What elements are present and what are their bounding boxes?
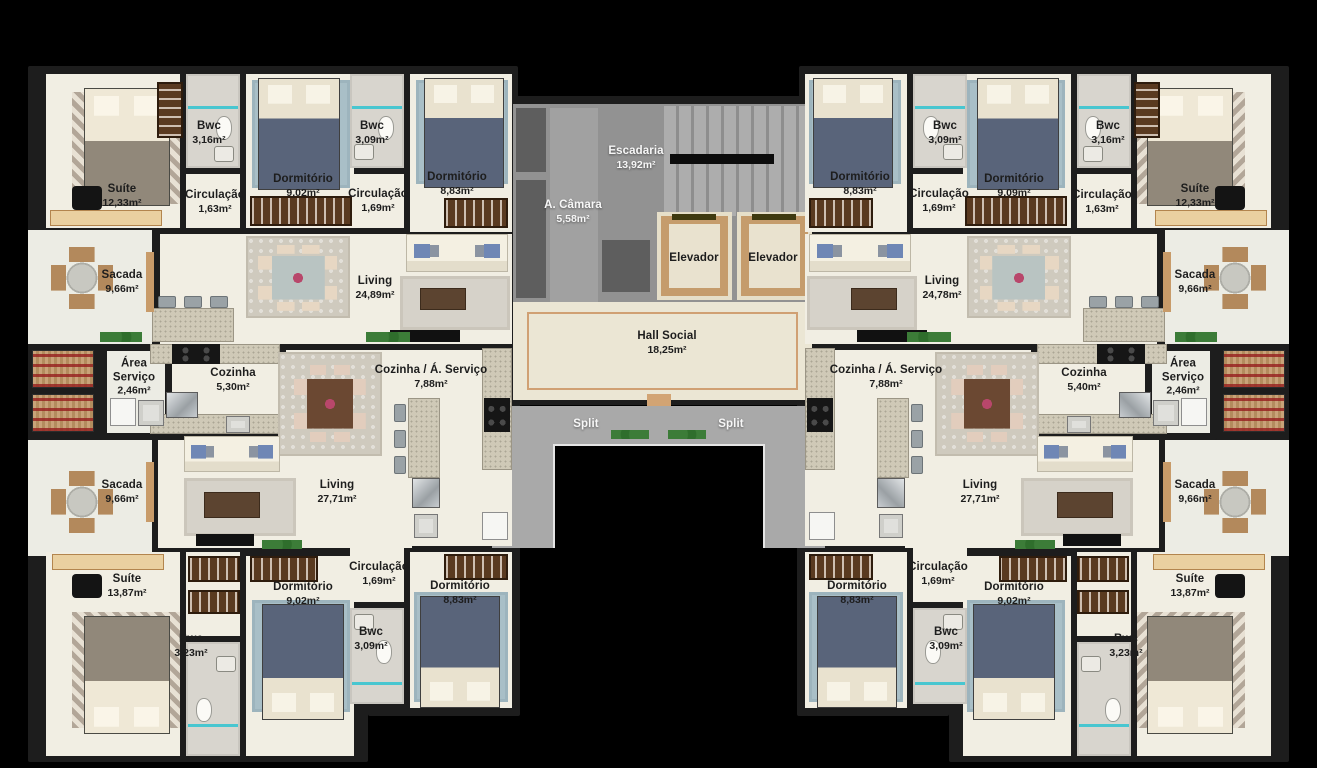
label-circ1-top-right-line-0: Circulação xyxy=(1072,189,1132,203)
label-living-bottom-line-0: Living xyxy=(317,479,356,493)
label-circ2-top-line-1: 1,69m² xyxy=(348,202,408,214)
dining-top-table-right xyxy=(975,244,1063,312)
terrace-band xyxy=(492,406,826,446)
label-living-bottom-right-line-0: Living xyxy=(960,479,999,493)
label-sacada-top: Sacada9,66m² xyxy=(102,269,143,295)
label-split: Split xyxy=(573,418,598,432)
label-dorm1-bottom: Dormitório9,02m² xyxy=(273,581,333,607)
condenser-ledge-2 xyxy=(32,394,94,432)
suite-bottom-desk xyxy=(52,554,164,570)
suite-bottom-desk-right xyxy=(1153,554,1265,570)
label-suite-bottom-line-1: 13,87m² xyxy=(107,587,146,599)
condenser-ledge-2-right xyxy=(1223,394,1285,432)
label-suite-bottom-right: Suíte13,87m² xyxy=(1170,573,1209,599)
stairs-dark-box-2 xyxy=(516,180,546,298)
plant-1-right xyxy=(1175,332,1217,342)
label-living-bottom: Living27,71m² xyxy=(317,479,356,505)
label-dorm2-bottom-right-line-0: Dormitório xyxy=(827,580,887,594)
label-dorm1-bottom-right-line-0: Dormitório xyxy=(984,581,1044,595)
label-dorm2-bottom-line-0: Dormitório xyxy=(430,580,490,594)
label-area-servico-right-line-2: 2,46m² xyxy=(1162,384,1204,396)
bwc1-bottom-shower xyxy=(188,724,238,727)
label-bwc2-top: Bwc3,09m² xyxy=(355,120,388,146)
bwc1-top-shower-right xyxy=(1079,106,1129,109)
label-dorm1-top: Dormitório9,02m² xyxy=(273,173,333,199)
label-bwc2-top-right: Bwc3,09m² xyxy=(928,120,961,146)
kitchen-top-stove-right xyxy=(1097,344,1145,364)
label-circ1-top: Circulação1,63m² xyxy=(185,189,245,215)
bwc2-bottom-shower xyxy=(352,682,402,685)
plant-center-right xyxy=(611,430,649,439)
label-split-right-line-0: Split xyxy=(718,418,743,432)
condenser-ledge-1-right xyxy=(1223,350,1285,388)
label-bwc2-bottom-right-line-1: 3,09m² xyxy=(929,640,962,652)
area-servico-washer-right xyxy=(1181,398,1207,426)
label-sacada-bottom-right-line-0: Sacada xyxy=(1175,479,1216,493)
label-circ1-top-line-0: Circulação xyxy=(185,189,245,203)
dorm1-bottom-wardrobe-right xyxy=(999,556,1067,582)
cozserv-fridge-right xyxy=(877,478,905,508)
label-dorm1-top-line-1: 9,02m² xyxy=(273,187,333,199)
label-dorm2-bottom-line-1: 8,83m² xyxy=(430,594,490,606)
plant-3 xyxy=(262,540,302,549)
bwc1-bottom-toilet-right xyxy=(1105,698,1121,722)
label-dorm1-top-right: Dormitório9,09m² xyxy=(984,173,1044,199)
living-bottom-desk xyxy=(204,492,260,518)
label-sacada-top-right: Sacada9,66m² xyxy=(1175,269,1216,295)
dorm2-bottom-wardrobe xyxy=(444,554,508,580)
cozserv-stove-right xyxy=(807,398,833,432)
suite-top-chair-right xyxy=(1215,186,1245,210)
bwc1-bottom-toilet xyxy=(196,698,212,722)
label-bwc1-bottom-right-line-0: Bwc xyxy=(1109,633,1142,647)
label-elevador-1: Elevador xyxy=(669,252,718,266)
label-bwc1-bottom-right-line-1: 3,23m² xyxy=(1109,647,1142,659)
kitchen-top-stool-1 xyxy=(158,296,176,308)
bwc1-bottom-basin-right xyxy=(1081,656,1101,672)
label-a-camara: A. Câmara5,58m² xyxy=(544,199,602,225)
floor-plan-canvas: Suíte12,33m²Suíte12,33m²Bwc3,16m²Bwc3,16… xyxy=(0,0,1317,768)
sacada-bottom-door xyxy=(146,462,154,522)
bwc1-top-shower xyxy=(188,106,238,109)
closet-bottom-wardrobe-1-right xyxy=(1077,556,1129,582)
label-cozinha-servico-line-1: 7,88m² xyxy=(375,378,488,390)
label-cozinha-right: Cozinha5,40m² xyxy=(1061,367,1106,393)
elevator-lobby-box xyxy=(602,240,650,292)
living-bottom-sofa xyxy=(184,436,280,472)
bwc1-top-basin-right xyxy=(1083,146,1103,162)
cozserv-stool-3-right xyxy=(911,456,923,474)
label-bwc1-top-line-1: 3,16m² xyxy=(192,134,225,146)
closet-bottom-wardrobe-2-right xyxy=(1077,590,1129,614)
elevator-1-door xyxy=(672,214,716,220)
label-dorm1-bottom-line-1: 9,02m² xyxy=(273,595,333,607)
label-hall-social-line-1: 18,25m² xyxy=(637,344,696,356)
label-sacada-bottom-right-line-1: 9,66m² xyxy=(1175,493,1216,505)
label-cozinha-line-1: 5,30m² xyxy=(210,381,255,393)
dorm2-bottom-bed-right xyxy=(817,596,897,708)
label-escadaria-line-0: Escadaria xyxy=(608,145,663,159)
kitchen-top-fridge-right xyxy=(1119,392,1151,418)
label-escadaria-line-1: 13,92m² xyxy=(608,159,663,171)
label-cozinha-servico-right: Cozinha / Á. Serviço7,88m² xyxy=(830,364,943,390)
label-circ-bottom-right: Circulação1,69m² xyxy=(908,561,968,587)
label-living-bottom-right: Living27,71m² xyxy=(960,479,999,505)
label-elevador-2: Elevador xyxy=(748,252,797,266)
label-dorm2-bottom-right: Dormitório8,83m² xyxy=(827,580,887,606)
label-bwc1-bottom: Bwc3,23m² xyxy=(174,633,207,659)
label-sacada-top-right-line-0: Sacada xyxy=(1175,269,1216,283)
label-dorm1-top-line-0: Dormitório xyxy=(273,173,333,187)
stairs-dark-box-1 xyxy=(516,108,546,172)
dorm1-bottom-wardrobe xyxy=(250,556,318,582)
label-suite-bottom-right-line-1: 13,87m² xyxy=(1170,587,1209,599)
cozserv-fridge xyxy=(412,478,440,508)
label-dorm1-bottom-line-0: Dormitório xyxy=(273,581,333,595)
label-suite-top-right-line-0: Suíte xyxy=(1175,183,1214,197)
living-top-sofa xyxy=(406,234,508,272)
label-dorm1-bottom-right-line-1: 9,02m² xyxy=(984,595,1044,607)
kitchen-top-fridge xyxy=(166,392,198,418)
label-area-servico-right-line-1: Serviço xyxy=(1162,371,1204,385)
living-bottom-sofa-right xyxy=(1037,436,1133,472)
label-cozinha-right-line-1: 5,40m² xyxy=(1061,381,1106,393)
stairs-handrail xyxy=(670,154,774,164)
sacada-bottom-door-right xyxy=(1163,462,1171,522)
label-circ1-top-right-line-1: 1,63m² xyxy=(1072,203,1132,215)
label-dorm2-top-line-0: Dormitório xyxy=(427,171,487,185)
label-bwc1-top-right-line-0: Bwc xyxy=(1091,120,1124,134)
label-area-servico-right-line-0: Área xyxy=(1162,357,1204,371)
plant-center xyxy=(668,430,706,439)
label-suite-bottom: Suíte13,87m² xyxy=(107,573,146,599)
living-top-desk xyxy=(420,288,466,310)
dorm2-top-wardrobe-right xyxy=(809,198,873,228)
label-bwc2-top-right-line-1: 3,09m² xyxy=(928,134,961,146)
living-top-sofa-right xyxy=(809,234,911,272)
cozserv-island xyxy=(408,398,440,478)
dorm1-top-wardrobe-right xyxy=(965,196,1067,226)
label-circ2-top-right: Circulação1,69m² xyxy=(909,188,969,214)
dining-bottom-table-right xyxy=(947,364,1027,444)
dorm2-bottom-bed xyxy=(420,596,500,708)
kitchen-top-stove xyxy=(172,344,220,364)
label-bwc2-bottom-line-0: Bwc xyxy=(354,626,387,640)
suite-bottom-bed xyxy=(84,616,170,734)
label-dorm2-top-line-1: 8,83m² xyxy=(427,185,487,197)
dorm2-bottom-wardrobe-right xyxy=(809,554,873,580)
label-living-bottom-right-line-1: 27,71m² xyxy=(960,493,999,505)
closet-bottom-wardrobe-1 xyxy=(188,556,240,582)
suite-top-chair xyxy=(72,186,102,210)
label-living-bottom-line-1: 27,71m² xyxy=(317,493,356,505)
label-sacada-top-line-0: Sacada xyxy=(102,269,143,283)
label-area-servico: ÁreaServiço2,46m² xyxy=(113,357,155,397)
label-bwc2-top-line-0: Bwc xyxy=(355,120,388,134)
label-bwc1-top-right-line-1: 3,16m² xyxy=(1091,134,1124,146)
label-area-servico-line-1: Serviço xyxy=(113,371,155,385)
bwc2-top-basin xyxy=(354,144,374,160)
label-dorm2-top-right: Dormitório8,83m² xyxy=(830,171,890,197)
label-sacada-top-line-1: 9,66m² xyxy=(102,283,143,295)
label-area-servico-line-0: Área xyxy=(113,357,155,371)
label-sacada-top-right-line-1: 9,66m² xyxy=(1175,283,1216,295)
kitchen-top-sink xyxy=(226,416,250,433)
label-circ-bottom-line-0: Circulação xyxy=(349,561,409,575)
bwc1-top-basin xyxy=(214,146,234,162)
label-living-top-line-0: Living xyxy=(355,275,394,289)
cozserv-tub xyxy=(482,512,508,540)
bwc2-top-shower-right xyxy=(915,106,965,109)
label-circ-bottom-line-1: 1,69m² xyxy=(349,575,409,587)
label-a-camara-line-0: A. Câmara xyxy=(544,199,602,213)
label-dorm2-top-right-line-0: Dormitório xyxy=(830,171,890,185)
suite-top-desk xyxy=(50,210,162,226)
cozserv-stove xyxy=(484,398,510,432)
label-circ2-top-right-line-1: 1,69m² xyxy=(909,202,969,214)
living-bottom-tv-right xyxy=(1063,534,1121,546)
label-dorm2-top-right-line-1: 8,83m² xyxy=(830,185,890,197)
label-bwc1-bottom-right: Bwc3,23m² xyxy=(1109,633,1142,659)
label-circ1-top-line-1: 1,63m² xyxy=(185,203,245,215)
label-bwc2-bottom-line-1: 3,09m² xyxy=(354,640,387,652)
label-a-camara-line-1: 5,58m² xyxy=(544,213,602,225)
label-living-top-right-line-1: 24,78m² xyxy=(922,289,961,301)
plant-1 xyxy=(100,332,142,342)
label-bwc2-bottom: Bwc3,09m² xyxy=(354,626,387,652)
kitchen-top-stool-3 xyxy=(210,296,228,308)
label-bwc1-top-line-0: Bwc xyxy=(192,120,225,134)
suite-bottom-chair xyxy=(72,574,102,598)
label-circ1-top-right: Circulação1,63m² xyxy=(1072,189,1132,215)
label-bwc1-top-right: Bwc3,16m² xyxy=(1091,120,1124,146)
cozserv-stool-3 xyxy=(394,456,406,474)
label-elevador-1-line-0: Elevador xyxy=(669,252,718,266)
label-dorm1-bottom-right: Dormitório9,02m² xyxy=(984,581,1044,607)
label-living-top-right: Living24,78m² xyxy=(922,275,961,301)
dorm1-bottom-bed-right xyxy=(973,604,1055,720)
label-circ2-top-line-0: Circulação xyxy=(348,188,408,202)
label-cozinha-servico: Cozinha / Á. Serviço7,88m² xyxy=(375,364,488,390)
dorm1-top-wardrobe xyxy=(250,196,352,226)
label-bwc1-top: Bwc3,16m² xyxy=(192,120,225,146)
label-escadaria: Escadaria13,92m² xyxy=(608,145,663,171)
cozserv-stool-1-right xyxy=(911,404,923,422)
label-bwc1-bottom-line-0: Bwc xyxy=(174,633,207,647)
cozserv-sink-right xyxy=(879,514,903,538)
kitchen-top-island-right xyxy=(1083,308,1165,342)
label-bwc2-bottom-right: Bwc3,09m² xyxy=(929,626,962,652)
kitchen-top-stool-2-right xyxy=(1115,296,1133,308)
label-sacada-bottom-right: Sacada9,66m² xyxy=(1175,479,1216,505)
label-cozinha-servico-right-line-1: 7,88m² xyxy=(830,378,943,390)
plant-2 xyxy=(366,332,410,342)
cozserv-sink xyxy=(414,514,438,538)
sacada-top-door-right xyxy=(1163,252,1171,312)
condenser-ledge-1 xyxy=(32,350,94,388)
label-suite-top-right: Suíte12,33m² xyxy=(1175,183,1214,209)
dining-top-table xyxy=(254,244,342,312)
label-suite-top-right-line-1: 12,33m² xyxy=(1175,197,1214,209)
dorm1-bottom-bed xyxy=(262,604,344,720)
label-hall-social: Hall Social18,25m² xyxy=(637,330,696,356)
elevator-2-door xyxy=(752,214,796,220)
area-servico-sink xyxy=(138,400,164,426)
kitchen-top-stool-3-right xyxy=(1089,296,1107,308)
cozserv-stool-2-right xyxy=(911,430,923,448)
sacada-top-door xyxy=(146,252,154,312)
dorm2-top-wardrobe xyxy=(444,198,508,228)
suite-bottom-bed-right xyxy=(1147,616,1233,734)
living-bottom-desk-right xyxy=(1057,492,1113,518)
label-dorm1-top-right-line-0: Dormitório xyxy=(984,173,1044,187)
label-cozinha-right-line-0: Cozinha xyxy=(1061,367,1106,381)
closet-bottom-wardrobe-2 xyxy=(188,590,240,614)
label-suite-bottom-right-line-0: Suíte xyxy=(1170,573,1209,587)
bwc2-top-shower xyxy=(352,106,402,109)
label-cozinha: Cozinha5,30m² xyxy=(210,367,255,393)
hall-door xyxy=(647,394,671,406)
kitchen-top-stool-2 xyxy=(184,296,202,308)
kitchen-top-sink-right xyxy=(1067,416,1091,433)
cozserv-island-right xyxy=(877,398,909,478)
area-servico-washer xyxy=(110,398,136,426)
label-suite-bottom-line-0: Suíte xyxy=(107,573,146,587)
cozserv-stool-1 xyxy=(394,404,406,422)
kitchen-top-island xyxy=(152,308,234,342)
label-split-right: Split xyxy=(718,418,743,432)
cozserv-tub-right xyxy=(809,512,835,540)
label-suite-top: Suíte12,33m² xyxy=(102,183,141,209)
label-cozinha-servico-right-line-0: Cozinha / Á. Serviço xyxy=(830,364,943,378)
label-circ-bottom-right-line-1: 1,69m² xyxy=(908,575,968,587)
label-circ2-top-right-line-0: Circulação xyxy=(909,188,969,202)
label-dorm2-bottom: Dormitório8,83m² xyxy=(430,580,490,606)
label-bwc2-top-right-line-0: Bwc xyxy=(928,120,961,134)
label-circ2-top: Circulação1,69m² xyxy=(348,188,408,214)
label-elevador-2-line-0: Elevador xyxy=(748,252,797,266)
suite-top-wardrobe-right xyxy=(1134,82,1160,138)
bwc1-bottom-shower-right xyxy=(1079,724,1129,727)
bwc1-bottom-basin xyxy=(216,656,236,672)
label-living-top-line-1: 24,89m² xyxy=(355,289,394,301)
label-hall-social-line-0: Hall Social xyxy=(637,330,696,344)
label-suite-top-line-0: Suíte xyxy=(102,183,141,197)
suite-top-wardrobe xyxy=(157,82,183,138)
label-bwc1-bottom-line-1: 3,23m² xyxy=(174,647,207,659)
living-top-desk-right xyxy=(851,288,897,310)
label-dorm2-top: Dormitório8,83m² xyxy=(427,171,487,197)
living-bottom-tv xyxy=(196,534,254,546)
label-sacada-bottom: Sacada9,66m² xyxy=(102,479,143,505)
label-area-servico-line-2: 2,46m² xyxy=(113,384,155,396)
label-living-top-right-line-0: Living xyxy=(922,275,961,289)
bwc2-bottom-shower-right xyxy=(915,682,965,685)
label-dorm2-bottom-right-line-1: 8,83m² xyxy=(827,594,887,606)
suite-top-desk-right xyxy=(1155,210,1267,226)
label-bwc2-top-line-1: 3,09m² xyxy=(355,134,388,146)
label-circ-bottom-right-line-0: Circulação xyxy=(908,561,968,575)
label-sacada-bottom-line-0: Sacada xyxy=(102,479,143,493)
plant-2-right xyxy=(907,332,951,342)
label-living-top: Living24,89m² xyxy=(355,275,394,301)
area-servico-sink-right xyxy=(1153,400,1179,426)
label-cozinha-servico-line-0: Cozinha / Á. Serviço xyxy=(375,364,488,378)
label-suite-top-line-1: 12,33m² xyxy=(102,197,141,209)
bwc2-top-basin-right xyxy=(943,144,963,160)
terrace-void xyxy=(553,444,765,548)
label-cozinha-line-0: Cozinha xyxy=(210,367,255,381)
cozserv-stool-2 xyxy=(394,430,406,448)
kitchen-top-stool-1-right xyxy=(1141,296,1159,308)
label-area-servico-right: ÁreaServiço2,46m² xyxy=(1162,357,1204,397)
dining-bottom-table xyxy=(290,364,370,444)
label-dorm1-top-right-line-1: 9,09m² xyxy=(984,187,1044,199)
plant-3-right xyxy=(1015,540,1055,549)
label-sacada-bottom-line-1: 9,66m² xyxy=(102,493,143,505)
suite-bottom-chair-right xyxy=(1215,574,1245,598)
label-circ-bottom: Circulação1,69m² xyxy=(349,561,409,587)
label-bwc2-bottom-right-line-0: Bwc xyxy=(929,626,962,640)
label-split-line-0: Split xyxy=(573,418,598,432)
